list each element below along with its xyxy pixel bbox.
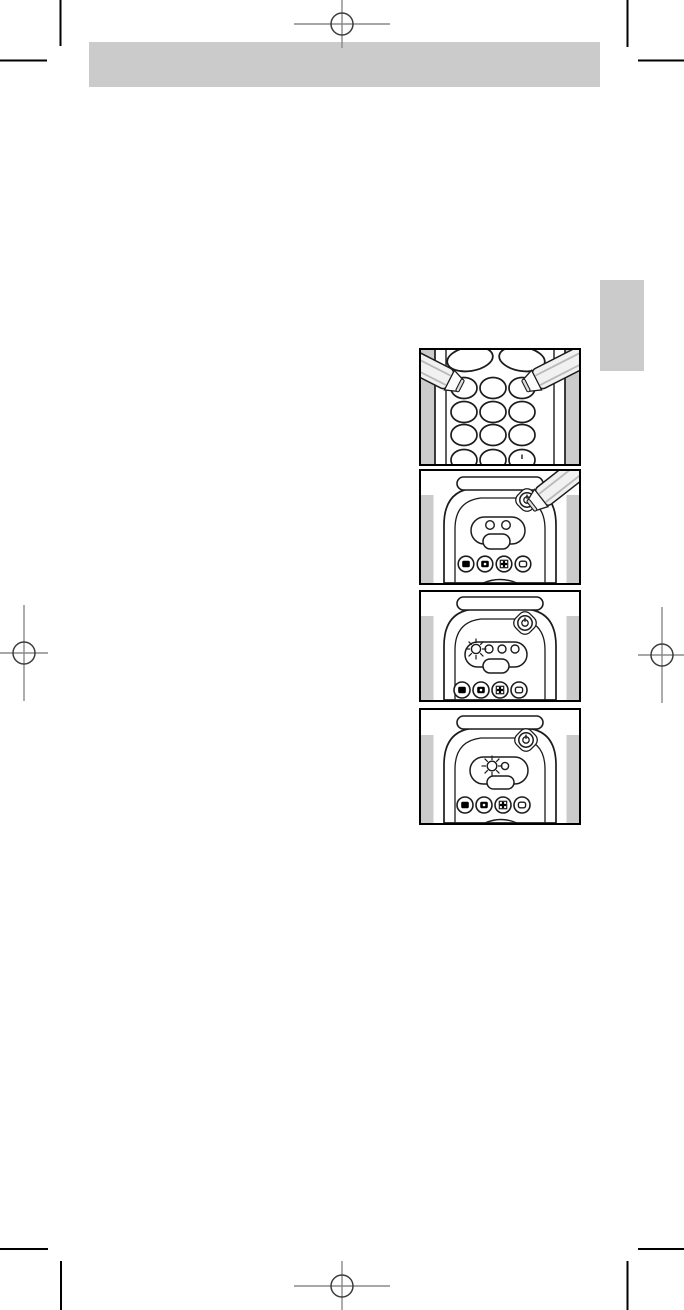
figure-led-blinking-row-of-four bbox=[419, 590, 581, 702]
trim-marks bbox=[0, 0, 684, 1310]
aux-button-icon bbox=[515, 556, 531, 572]
figure-press-two-keypad-buttons bbox=[419, 348, 581, 466]
registration-mark-right bbox=[638, 607, 684, 703]
print-marks-layer bbox=[0, 0, 684, 1310]
registration-mark-top bbox=[294, 0, 390, 48]
registration-mark-left bbox=[0, 605, 48, 701]
blinking-led-icon bbox=[466, 639, 487, 660]
figure-pen-pressing-standby-button bbox=[419, 469, 581, 585]
ok-pill-button bbox=[483, 534, 510, 549]
ok-pill-button bbox=[487, 776, 514, 789]
manual-page bbox=[0, 0, 684, 1310]
aux-button-icon bbox=[514, 797, 530, 813]
registration-mark-bottom bbox=[294, 1261, 390, 1310]
aux-button-icon bbox=[511, 682, 527, 698]
figure-led-blinking-pair bbox=[419, 708, 581, 825]
ok-pill-button bbox=[483, 659, 509, 673]
blinking-led-icon bbox=[482, 756, 503, 777]
keypad-button-grid bbox=[451, 378, 535, 465]
